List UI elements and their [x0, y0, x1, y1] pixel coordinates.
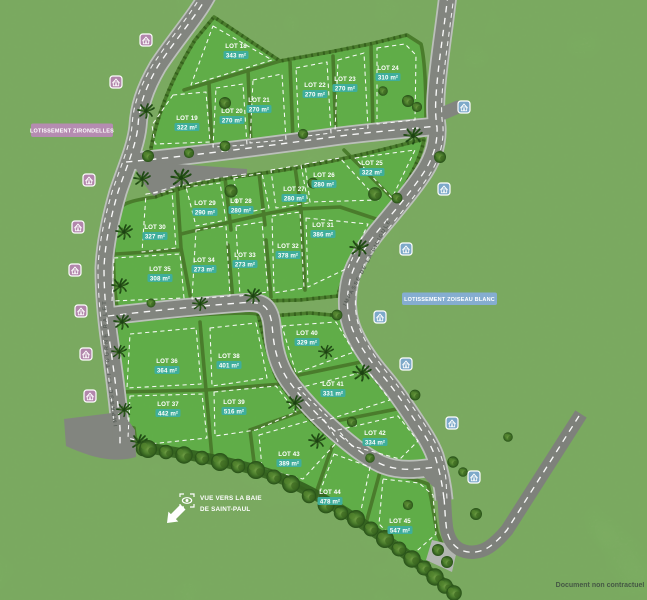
svg-text:LOT 23: LOT 23: [334, 76, 356, 83]
svg-text:LOT 43: LOT 43: [278, 451, 300, 458]
svg-text:270 m²: 270 m²: [335, 86, 355, 93]
svg-text:LOT 44: LOT 44: [319, 489, 341, 496]
svg-text:343 m²: 343 m²: [226, 53, 246, 60]
svg-text:LOT 39: LOT 39: [223, 399, 245, 406]
svg-text:273 m²: 273 m²: [235, 262, 255, 269]
svg-text:LOT 28: LOT 28: [230, 198, 252, 205]
svg-text:LOT 32: LOT 32: [277, 243, 299, 250]
svg-text:442 m²: 442 m²: [158, 411, 178, 418]
svg-text:LOT 26: LOT 26: [313, 172, 335, 179]
svg-text:270 m²: 270 m²: [305, 92, 325, 99]
svg-text:LOT 20: LOT 20: [221, 108, 243, 115]
svg-text:273 m²: 273 m²: [194, 267, 214, 274]
svg-text:LOT 40: LOT 40: [296, 330, 318, 337]
svg-text:547 m²: 547 m²: [390, 528, 410, 535]
svg-text:LOT 29: LOT 29: [194, 200, 216, 207]
svg-text:LOT 21: LOT 21: [248, 97, 270, 104]
svg-text:Document non contractuel: Document non contractuel: [556, 582, 645, 589]
svg-text:290 m²: 290 m²: [195, 210, 215, 217]
svg-text:280 m²: 280 m²: [231, 208, 251, 215]
svg-text:LOTISSEMENT ZIRONDELLES: LOTISSEMENT ZIRONDELLES: [30, 128, 114, 134]
svg-text:LOT 22: LOT 22: [304, 82, 326, 89]
svg-text:LOT 35: LOT 35: [149, 266, 171, 273]
svg-text:327 m²: 327 m²: [145, 234, 165, 241]
svg-text:LOT 18: LOT 18: [225, 43, 247, 50]
svg-text:310 m²: 310 m²: [378, 75, 398, 82]
svg-text:LOT 24: LOT 24: [377, 65, 399, 72]
svg-text:LOT 38: LOT 38: [218, 353, 240, 360]
svg-text:378 m²: 378 m²: [278, 253, 298, 260]
svg-text:280 m²: 280 m²: [284, 196, 304, 203]
svg-text:LOT 19: LOT 19: [176, 115, 198, 122]
svg-text:334 m²: 334 m²: [365, 440, 385, 447]
svg-text:LOT 45: LOT 45: [389, 518, 411, 525]
svg-text:LOT 37: LOT 37: [157, 401, 179, 408]
svg-text:LOT 30: LOT 30: [144, 224, 166, 231]
svg-text:280 m²: 280 m²: [314, 182, 334, 189]
svg-text:LOT 31: LOT 31: [312, 222, 334, 229]
svg-text:LOT 27: LOT 27: [283, 186, 305, 193]
svg-text:322 m²: 322 m²: [177, 125, 197, 132]
svg-text:LOTISSEMENT ZOISEAU BLANC: LOTISSEMENT ZOISEAU BLANC: [404, 297, 495, 303]
svg-text:386 m²: 386 m²: [313, 232, 333, 239]
svg-text:308 m²: 308 m²: [150, 276, 170, 283]
svg-text:478 m²: 478 m²: [320, 499, 340, 506]
svg-text:LOT 33: LOT 33: [234, 252, 256, 259]
svg-text:LOT 42: LOT 42: [364, 430, 386, 437]
svg-text:401 m²: 401 m²: [219, 363, 239, 370]
svg-text:331 m²: 331 m²: [323, 391, 343, 398]
svg-text:322 m²: 322 m²: [362, 170, 382, 177]
svg-text:389 m²: 389 m²: [279, 461, 299, 468]
svg-text:LOT 25: LOT 25: [361, 160, 383, 167]
svg-text:LOT 41: LOT 41: [322, 381, 344, 388]
svg-text:LOT 36: LOT 36: [156, 358, 178, 365]
svg-text:270 m²: 270 m²: [249, 107, 269, 114]
svg-text:270 m²: 270 m²: [222, 118, 242, 125]
svg-text:DE SAINT-PAUL: DE SAINT-PAUL: [200, 506, 250, 513]
svg-text:LOT 34: LOT 34: [193, 257, 215, 264]
svg-text:VUE VERS LA BAIE: VUE VERS LA BAIE: [200, 495, 262, 502]
svg-text:516 m²: 516 m²: [224, 409, 244, 416]
svg-text:329 m²: 329 m²: [297, 340, 317, 347]
svg-text:364 m²: 364 m²: [157, 368, 177, 375]
